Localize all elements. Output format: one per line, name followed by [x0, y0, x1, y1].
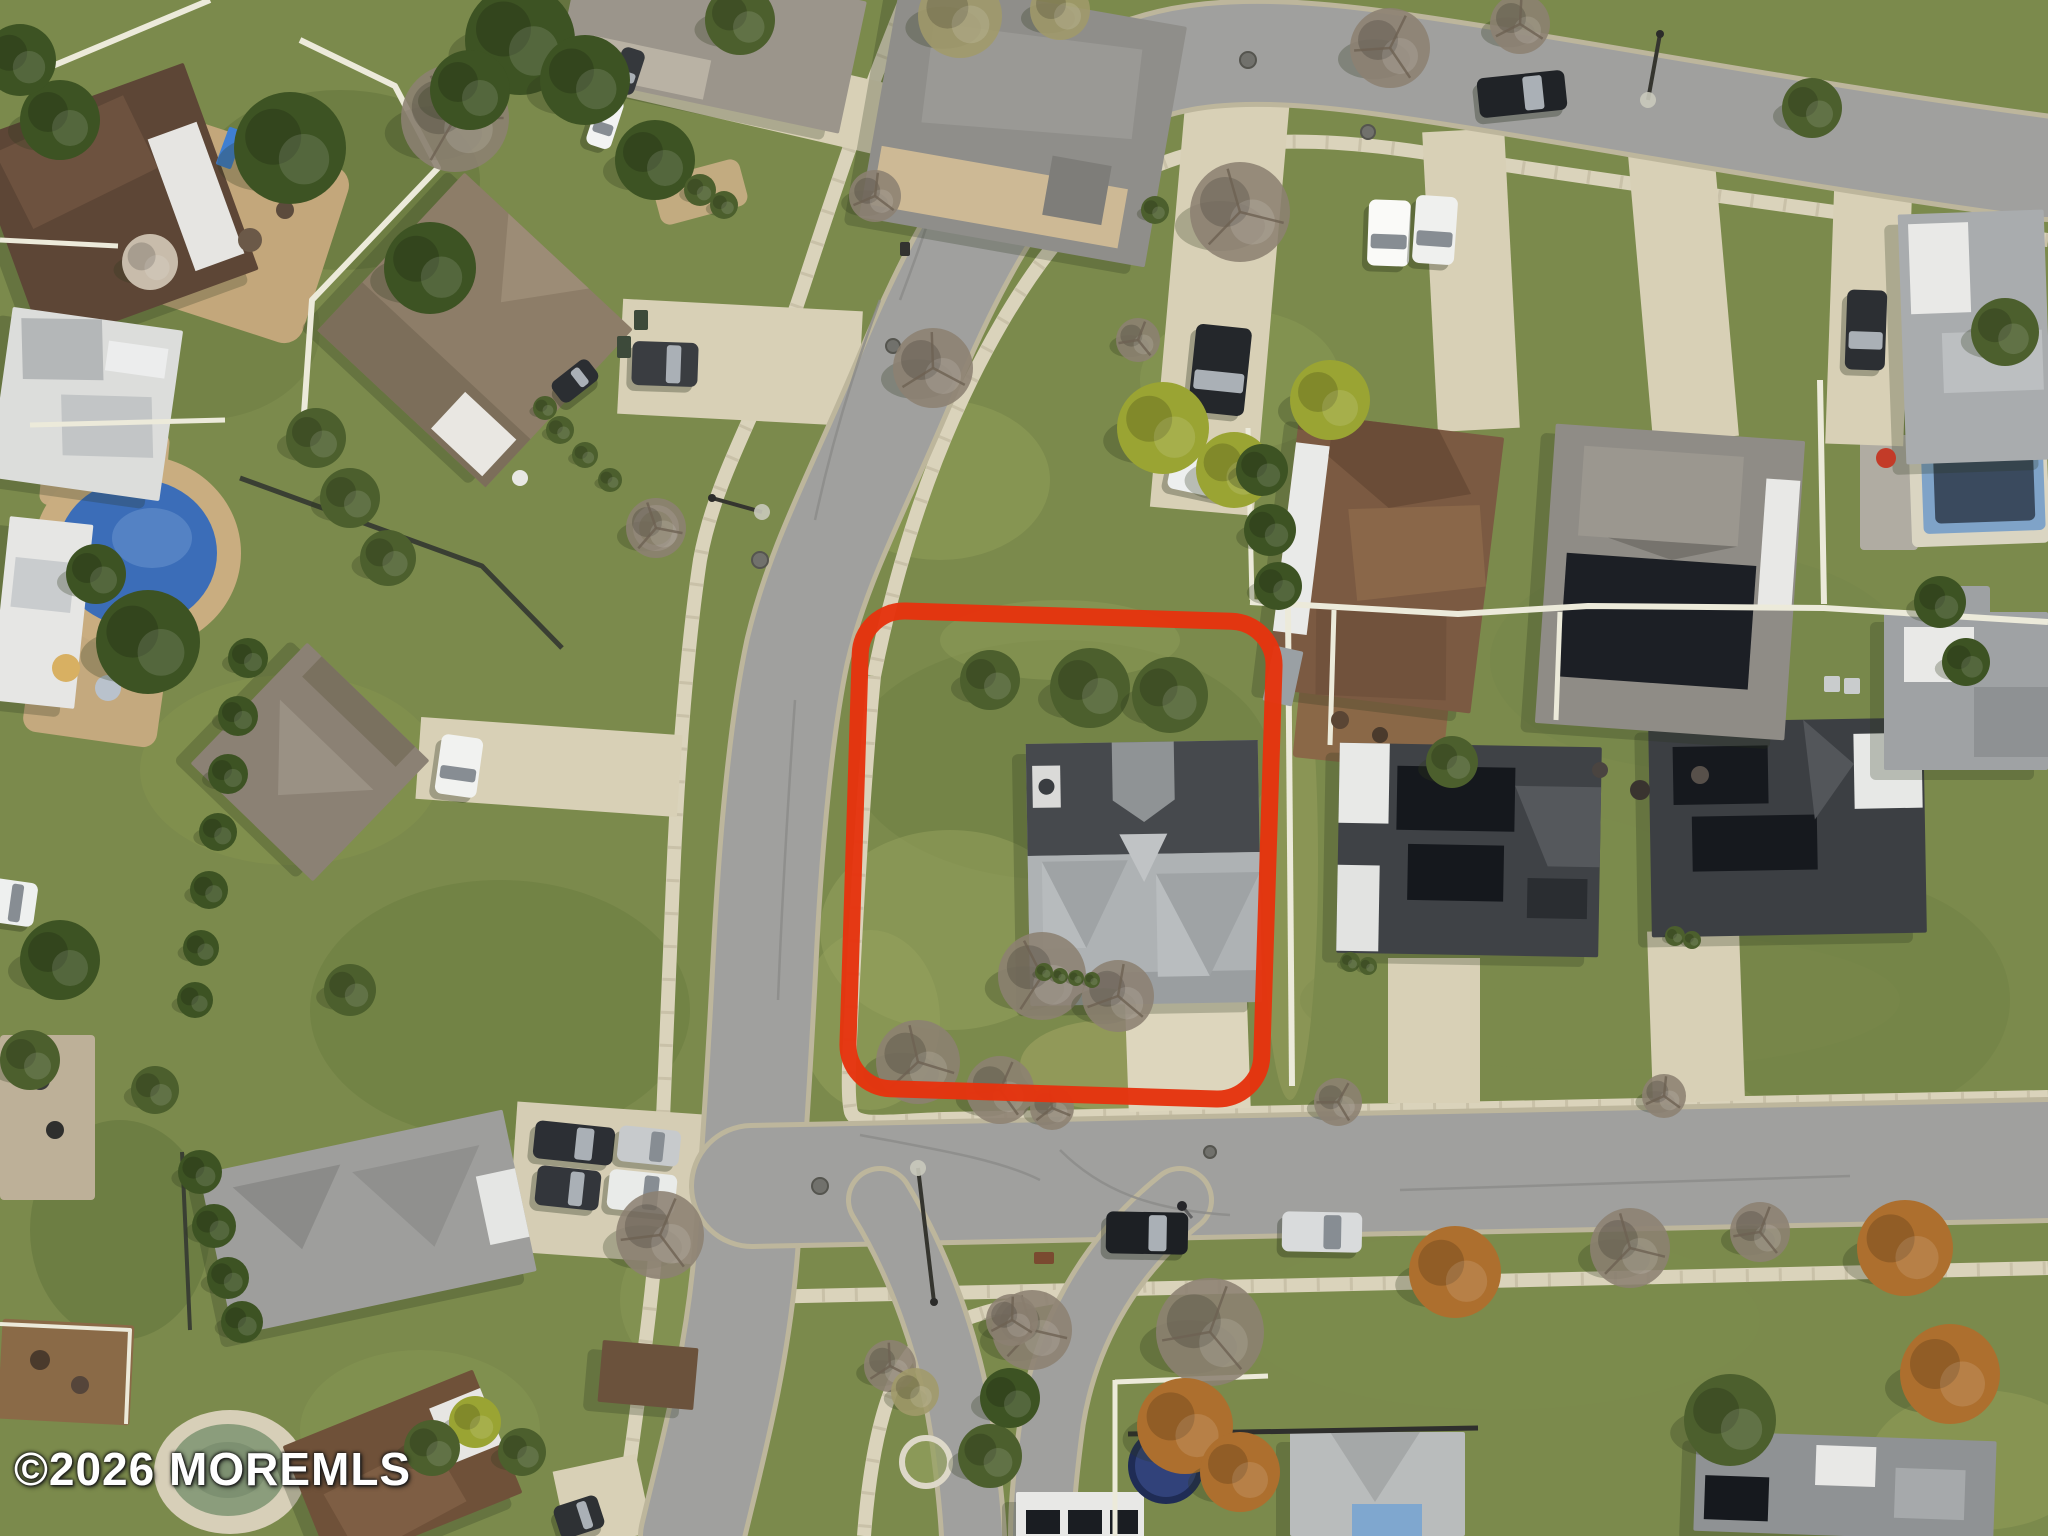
parked-car — [1471, 70, 1568, 125]
house-right-edge-pool — [1870, 612, 2048, 780]
aerial-photo-stage: ©2026 MOREMLS — [0, 0, 2048, 1536]
parked-car — [626, 341, 699, 393]
house-solar-north — [1520, 423, 1805, 751]
parked-car — [1406, 194, 1458, 271]
aerial-photograph — [0, 0, 2048, 1536]
parked-car — [1839, 289, 1887, 377]
house-white-left — [0, 305, 183, 511]
parked-car — [1101, 1211, 1189, 1261]
watermark-text: ©2026 MOREMLS — [14, 1442, 411, 1496]
house-bottom-white-solar — [1002, 1492, 1144, 1536]
parked-car — [528, 1164, 601, 1217]
parked-car — [527, 1119, 616, 1172]
parked-car — [1362, 199, 1411, 273]
shed-bottom-left — [583, 1339, 699, 1420]
parked-car — [611, 1124, 682, 1173]
parked-car — [428, 733, 484, 805]
house-bottom-gray — [1276, 1432, 1465, 1536]
parked-car — [1277, 1211, 1363, 1258]
